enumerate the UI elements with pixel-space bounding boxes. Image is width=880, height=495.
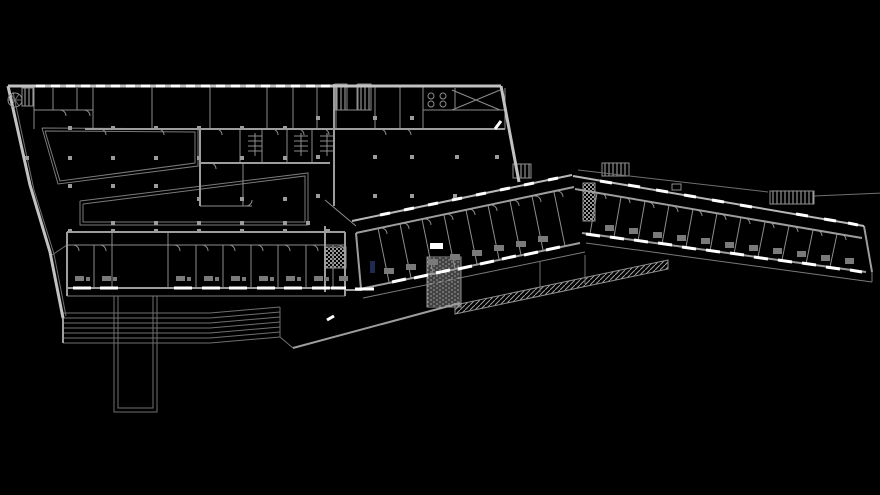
cad-viewport <box>0 0 880 495</box>
floor-plan-svg <box>0 0 880 495</box>
page: { "canvas":{"width":880,"height":495,"ba… <box>0 0 880 495</box>
